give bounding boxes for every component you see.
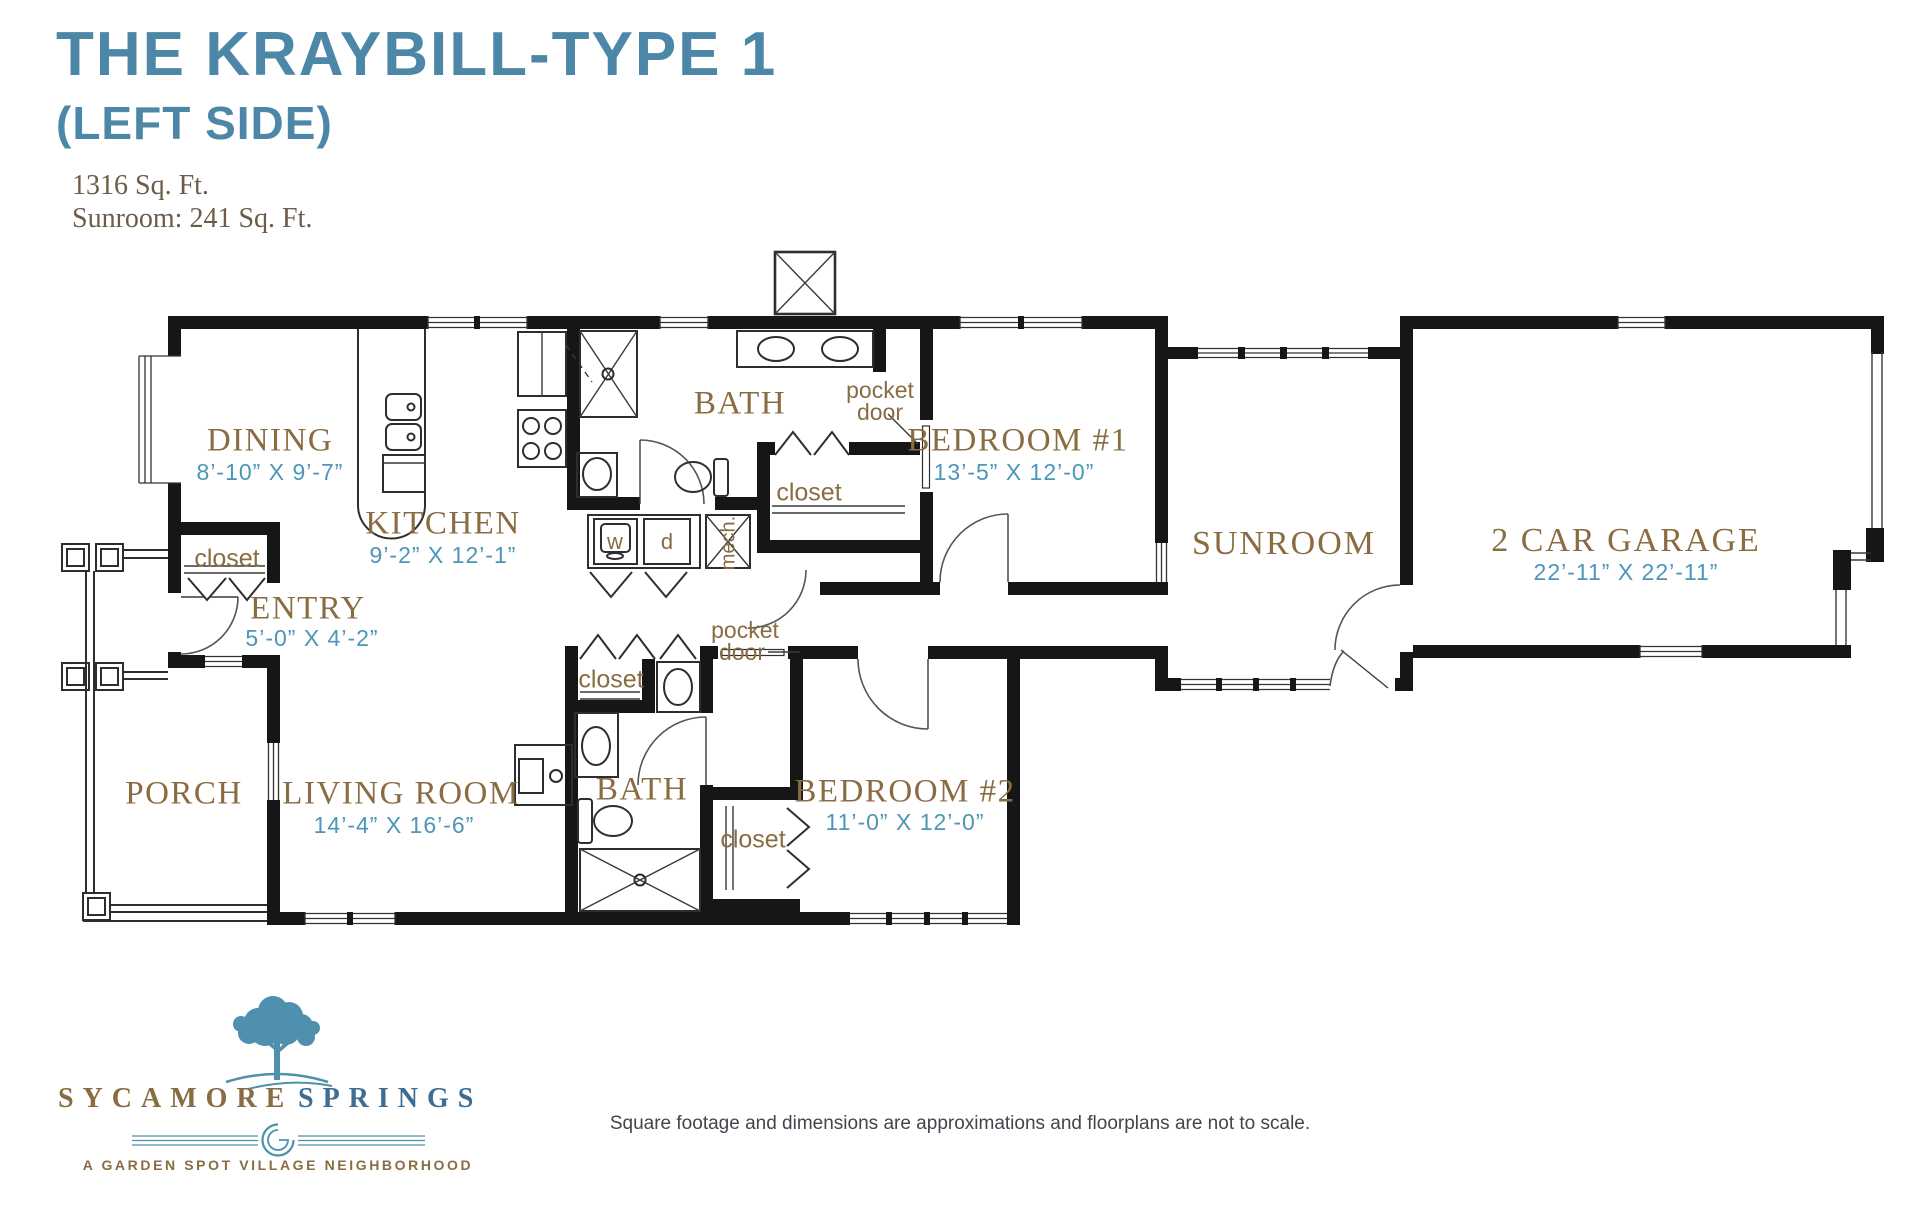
logo-tree <box>233 996 320 1080</box>
bedroom1-closet-label: closet <box>776 479 841 507</box>
stove <box>518 410 566 467</box>
bath1-toilet <box>675 459 728 496</box>
bedroom2-dims: 11’-0” X 12’-0” <box>825 809 984 835</box>
kitchen-label: KITCHEN <box>365 506 520 542</box>
pocket-door-label-bottom-2: door <box>719 639 765 665</box>
vent-box <box>775 252 835 314</box>
bath2-shower <box>580 849 700 911</box>
bedroom1-label: BEDROOM #1 <box>907 423 1128 459</box>
mech-label: mech. <box>717 516 739 570</box>
entry-label: ENTRY <box>250 591 366 627</box>
logo-name-left: SYCAMORE <box>58 1083 293 1114</box>
bedroom1-dims: 13’-5” X 12’-0” <box>934 459 1095 485</box>
porch-posts <box>62 544 123 920</box>
bath1-shower <box>580 331 637 417</box>
floorplan-page: THE KRAYBILL-TYPE 1 (LEFT SIDE) 1316 Sq.… <box>0 0 1920 1206</box>
bath2-label: BATH <box>596 772 688 808</box>
bedroom2-closet-label: closet <box>720 826 785 854</box>
living-builtin <box>515 745 572 805</box>
bath2-vanity <box>575 713 618 777</box>
sunroom-label: SUNROOM <box>1192 525 1376 562</box>
hall-vanity <box>657 662 700 712</box>
bath1-vanity <box>737 331 873 367</box>
dining-label: DINING <box>207 423 333 459</box>
entry-closet-label: closet <box>194 545 259 573</box>
garage-dims: 22’-11” X 22’-11” <box>1534 559 1719 585</box>
garage-label: 2 CAR GARAGE <box>1491 522 1761 559</box>
hall-closet-label: closet <box>578 666 643 694</box>
living-label: LIVING ROOM <box>282 776 519 812</box>
dryer-label: d <box>661 529 673 554</box>
bath1-sink <box>577 453 617 497</box>
bedroom2-label: BEDROOM #2 <box>794 774 1015 810</box>
porch-label: PORCH <box>125 776 243 812</box>
entry-dims: 5’-0” X 4’-2” <box>245 625 378 651</box>
porch-structure <box>62 544 267 921</box>
refrigerator <box>518 332 566 396</box>
fixtures <box>184 252 918 911</box>
living-dims: 14’-4” X 16’-6” <box>314 812 475 838</box>
logo: SYCAMORE SPRINGS A GARDEN SPOT VILLAGE N… <box>58 996 482 1173</box>
logo-name-right: SPRINGS <box>298 1083 482 1114</box>
floorplan-drawing: DINING 8’-10” X 9’-7” KITCHEN 9’-2” X 12… <box>0 0 1920 1206</box>
logo-tagline: A GARDEN SPOT VILLAGE NEIGHBORHOOD <box>83 1157 473 1173</box>
pocket-door-label-top-2: door <box>857 399 903 425</box>
bay-window <box>139 356 181 483</box>
disclaimer-text: Square footage and dimensions are approx… <box>0 1113 1920 1135</box>
bath1-label: BATH <box>694 386 786 422</box>
kitchen-dims: 9’-2” X 12’-1” <box>370 542 517 568</box>
dining-dims: 8’-10” X 9’-7” <box>197 459 344 485</box>
washer-label: w <box>606 529 623 554</box>
